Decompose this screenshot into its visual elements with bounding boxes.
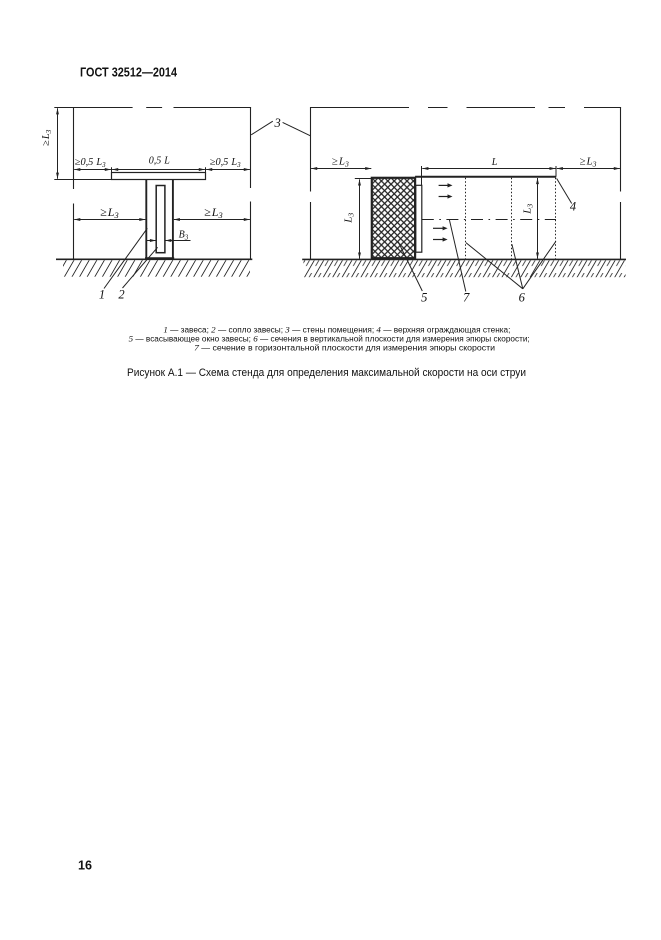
svg-text:5 — всасывающее окно завесы; 6: 5 — всасывающее окно завесы; 6 — сечения… (129, 333, 530, 343)
svg-text:≥0,5 L3: ≥0,5 L3 (75, 157, 106, 169)
svg-text:≥L3: ≥L3 (204, 205, 222, 220)
svg-text:ГОСТ 32512—2014: ГОСТ 32512—2014 (80, 65, 177, 79)
svg-text:≥L3: ≥L3 (100, 205, 118, 220)
svg-text:1 — завеса; 2 — сопло завесы;: 1 — завеса; 2 — сопло завесы; 3 — стены … (163, 325, 510, 335)
svg-text:≥L3: ≥L3 (580, 156, 597, 169)
svg-text:B3: B3 (179, 230, 189, 242)
svg-text:7: 7 (463, 291, 470, 305)
svg-text:7 — сечение в горизонтальной п: 7 — сечение в горизонтальной плоскости д… (194, 342, 495, 352)
svg-text:≥L3: ≥L3 (332, 156, 349, 169)
svg-text:3: 3 (273, 116, 280, 130)
svg-text:6: 6 (519, 291, 526, 305)
svg-text:5: 5 (421, 291, 427, 305)
svg-text:4: 4 (570, 200, 576, 214)
svg-text:≥L3: ≥L3 (41, 129, 53, 146)
svg-text:≥0,5 L3: ≥0,5 L3 (210, 157, 241, 169)
svg-text:16: 16 (78, 858, 92, 872)
svg-text:L3: L3 (522, 204, 535, 215)
svg-text:Рисунок А.1 — Схема стенда для: Рисунок А.1 — Схема стенда для определен… (127, 367, 526, 379)
svg-text:0,5 L: 0,5 L (149, 156, 171, 167)
svg-text:L: L (491, 157, 498, 168)
svg-text:1: 1 (99, 288, 105, 302)
svg-text:2: 2 (118, 288, 124, 302)
svg-text:L3: L3 (342, 213, 355, 224)
